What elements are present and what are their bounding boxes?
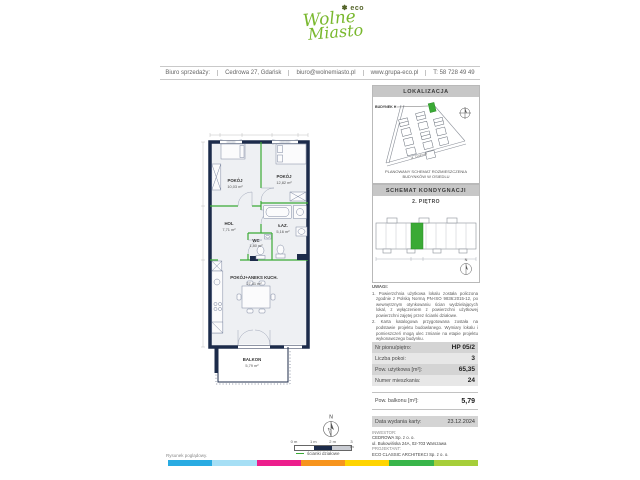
svg-text:N: N — [465, 258, 468, 262]
room-name: HOL — [224, 221, 233, 226]
disclaimer-note: Rysunek poglądowy. — [166, 453, 207, 458]
detail-value: 24 — [468, 377, 475, 384]
highlighted-building — [428, 102, 436, 112]
scale-tick-label: 0 m — [291, 439, 298, 444]
detail-row-usable-area: Pow. użytkowa [m²]: 65,35 — [372, 364, 478, 375]
detail-row-riser: Nr pionu/piętro: HP 05/2 — [372, 342, 478, 353]
room-area: 12,82 m² — [276, 180, 292, 185]
location-header: LOKALIZACJA — [373, 86, 479, 97]
designer-name: ECO CLASSIC ARCHITEKCI Sp. z o. o. — [372, 452, 478, 457]
detail-label: Liczba pokoi: — [375, 356, 406, 362]
room-name: BALKON — [243, 357, 261, 362]
apartment-card-page: { "logo": {"eco": "✽ eco", "line1": "Wol… — [0, 0, 640, 480]
location-section: LOKALIZACJA BUDYNEK H ul. Cedrowa PLANO — [372, 85, 480, 184]
contact-email: biuro@wolnemiasto.pl — [288, 70, 362, 76]
scale-tick-label: 3 m — [350, 439, 353, 449]
scale-tick-label: 2 m — [329, 439, 336, 444]
bathroom-sink — [296, 227, 307, 236]
window-living — [284, 345, 302, 350]
logo-wordmark: Wolne Miasto — [289, 9, 371, 44]
wardrobe-bedroom1 — [212, 164, 221, 190]
detail-label: Pow. balkonu [m²]: — [375, 398, 419, 404]
building-leader-line — [397, 106, 428, 107]
scale-bar: 0 m 1 m 2 m 3 m — [294, 439, 352, 451]
stripe-segment — [212, 460, 256, 466]
detail-row-apartment-number: Numer mieszkania: 24 — [372, 375, 478, 386]
map-compass-icon — [459, 107, 471, 119]
floor-number-label: 2. PIĘTRO — [373, 199, 479, 205]
schema-compass-icon: N — [461, 258, 472, 275]
notes-title: UWAGI: — [372, 284, 478, 290]
wc-toilet — [256, 246, 265, 259]
detail-label: Pow. użytkowa [m²]: — [375, 367, 422, 373]
stripe-segment — [389, 460, 433, 466]
contact-website: www.grupa-eco.pl — [363, 70, 426, 76]
stripe-segment — [168, 460, 212, 466]
scale-bar-segments — [294, 445, 352, 451]
room-area: 10,03 m² — [227, 184, 243, 189]
location-caption: PLANOWANY SCHEMAT ROZMIESZCZENIA BUDYNKÓ… — [373, 169, 479, 179]
detail-label: Numer mieszkania: — [375, 378, 420, 384]
stripe-segment — [345, 460, 389, 466]
site-map: BUDYNEK H ul. Cedrowa — [373, 97, 479, 168]
stripe-segment — [434, 460, 478, 466]
brand-color-stripe — [168, 460, 478, 466]
svg-text:N: N — [329, 415, 333, 421]
detail-value: 23.12.2024 — [447, 419, 475, 425]
floor-schema-header: SCHEMAT KONDYGNACJI — [373, 185, 479, 196]
stripe-segment — [257, 460, 301, 466]
room-name: POKÓJ — [227, 178, 243, 183]
kitchen-units — [212, 261, 223, 333]
north-compass-icon: N — [322, 413, 340, 439]
detail-row-issue-date: Data wydania karty: 23.12.2024 — [372, 416, 478, 427]
sales-office-label: Biuro sprzedaży: — [158, 70, 217, 76]
stripe-segment — [301, 460, 345, 466]
room-area: 5,79 m² — [245, 363, 259, 368]
floor-schema-section: SCHEMAT KONDYGNACJI 2. PIĘTRO N — [372, 184, 480, 283]
building-label: BUDYNEK H — [375, 105, 397, 109]
room-area: 1,80 m² — [249, 243, 263, 248]
partition-line-swatch — [296, 453, 304, 455]
schema-dimension-line — [376, 257, 476, 261]
detail-row-rooms: Liczba pokoi: 3 — [372, 353, 478, 364]
partition-legend-label: ścianki działowe — [307, 451, 340, 456]
scale-tick-label: 1 m — [310, 439, 317, 444]
contact-phone: T: 58 728 49 49 — [425, 70, 481, 76]
bed-bedroom1 — [221, 144, 245, 159]
room-name: POKÓJ+ANEKS KUCH. — [230, 275, 277, 280]
room-area: 7,71 m² — [222, 227, 236, 232]
detail-label: Data wydania karty: — [375, 419, 422, 425]
note-item: 1. Powierzchnia użytkowa lokalu została … — [372, 291, 478, 319]
room-area: 27,41 m² — [246, 281, 262, 286]
highlighted-unit — [411, 223, 423, 249]
wardrobe-bedroom2 — [290, 192, 306, 201]
sales-office-address: Cedrowa 27, Gdańsk — [217, 70, 288, 76]
note-item: 2. Karta katalogowa przygotowana została… — [372, 319, 478, 341]
logo-line2: Miasto — [300, 23, 371, 43]
bed-bedroom2 — [276, 144, 306, 164]
detail-label: Nr pionu/piętro: — [375, 345, 411, 351]
floor-plan: POKÓJ 10,03 m² POKÓJ 12,82 m² HOL 7,71 m… — [196, 130, 320, 396]
detail-value: 3 — [471, 355, 475, 362]
washing-machine — [294, 206, 307, 219]
detail-value: HP 05/2 — [452, 344, 475, 351]
building-cross-section: N — [373, 207, 479, 279]
logo: ✽ eco Wolne Miasto — [290, 4, 370, 40]
room-name: ŁAZ. — [278, 223, 288, 228]
wc-sink — [265, 235, 272, 240]
detail-value: 65,35 — [459, 366, 475, 373]
credits-section: INWESTOR: CEDROWA Sp. z o. o. ul. Bukowi… — [372, 430, 478, 457]
bathroom-toilet — [276, 245, 285, 258]
detail-row-balcony-area: Pow. balkonu [m²]: 5,79 — [372, 392, 478, 410]
room-name: POKÓJ — [276, 174, 292, 179]
partition-legend: ścianki działowe — [296, 451, 340, 456]
bathtub — [264, 206, 292, 219]
room-area: 5,16 m² — [276, 229, 290, 234]
detail-value: 5,79 — [461, 398, 475, 405]
contact-bar: Biuro sprzedaży: Cedrowa 27, Gdańsk biur… — [160, 66, 480, 80]
